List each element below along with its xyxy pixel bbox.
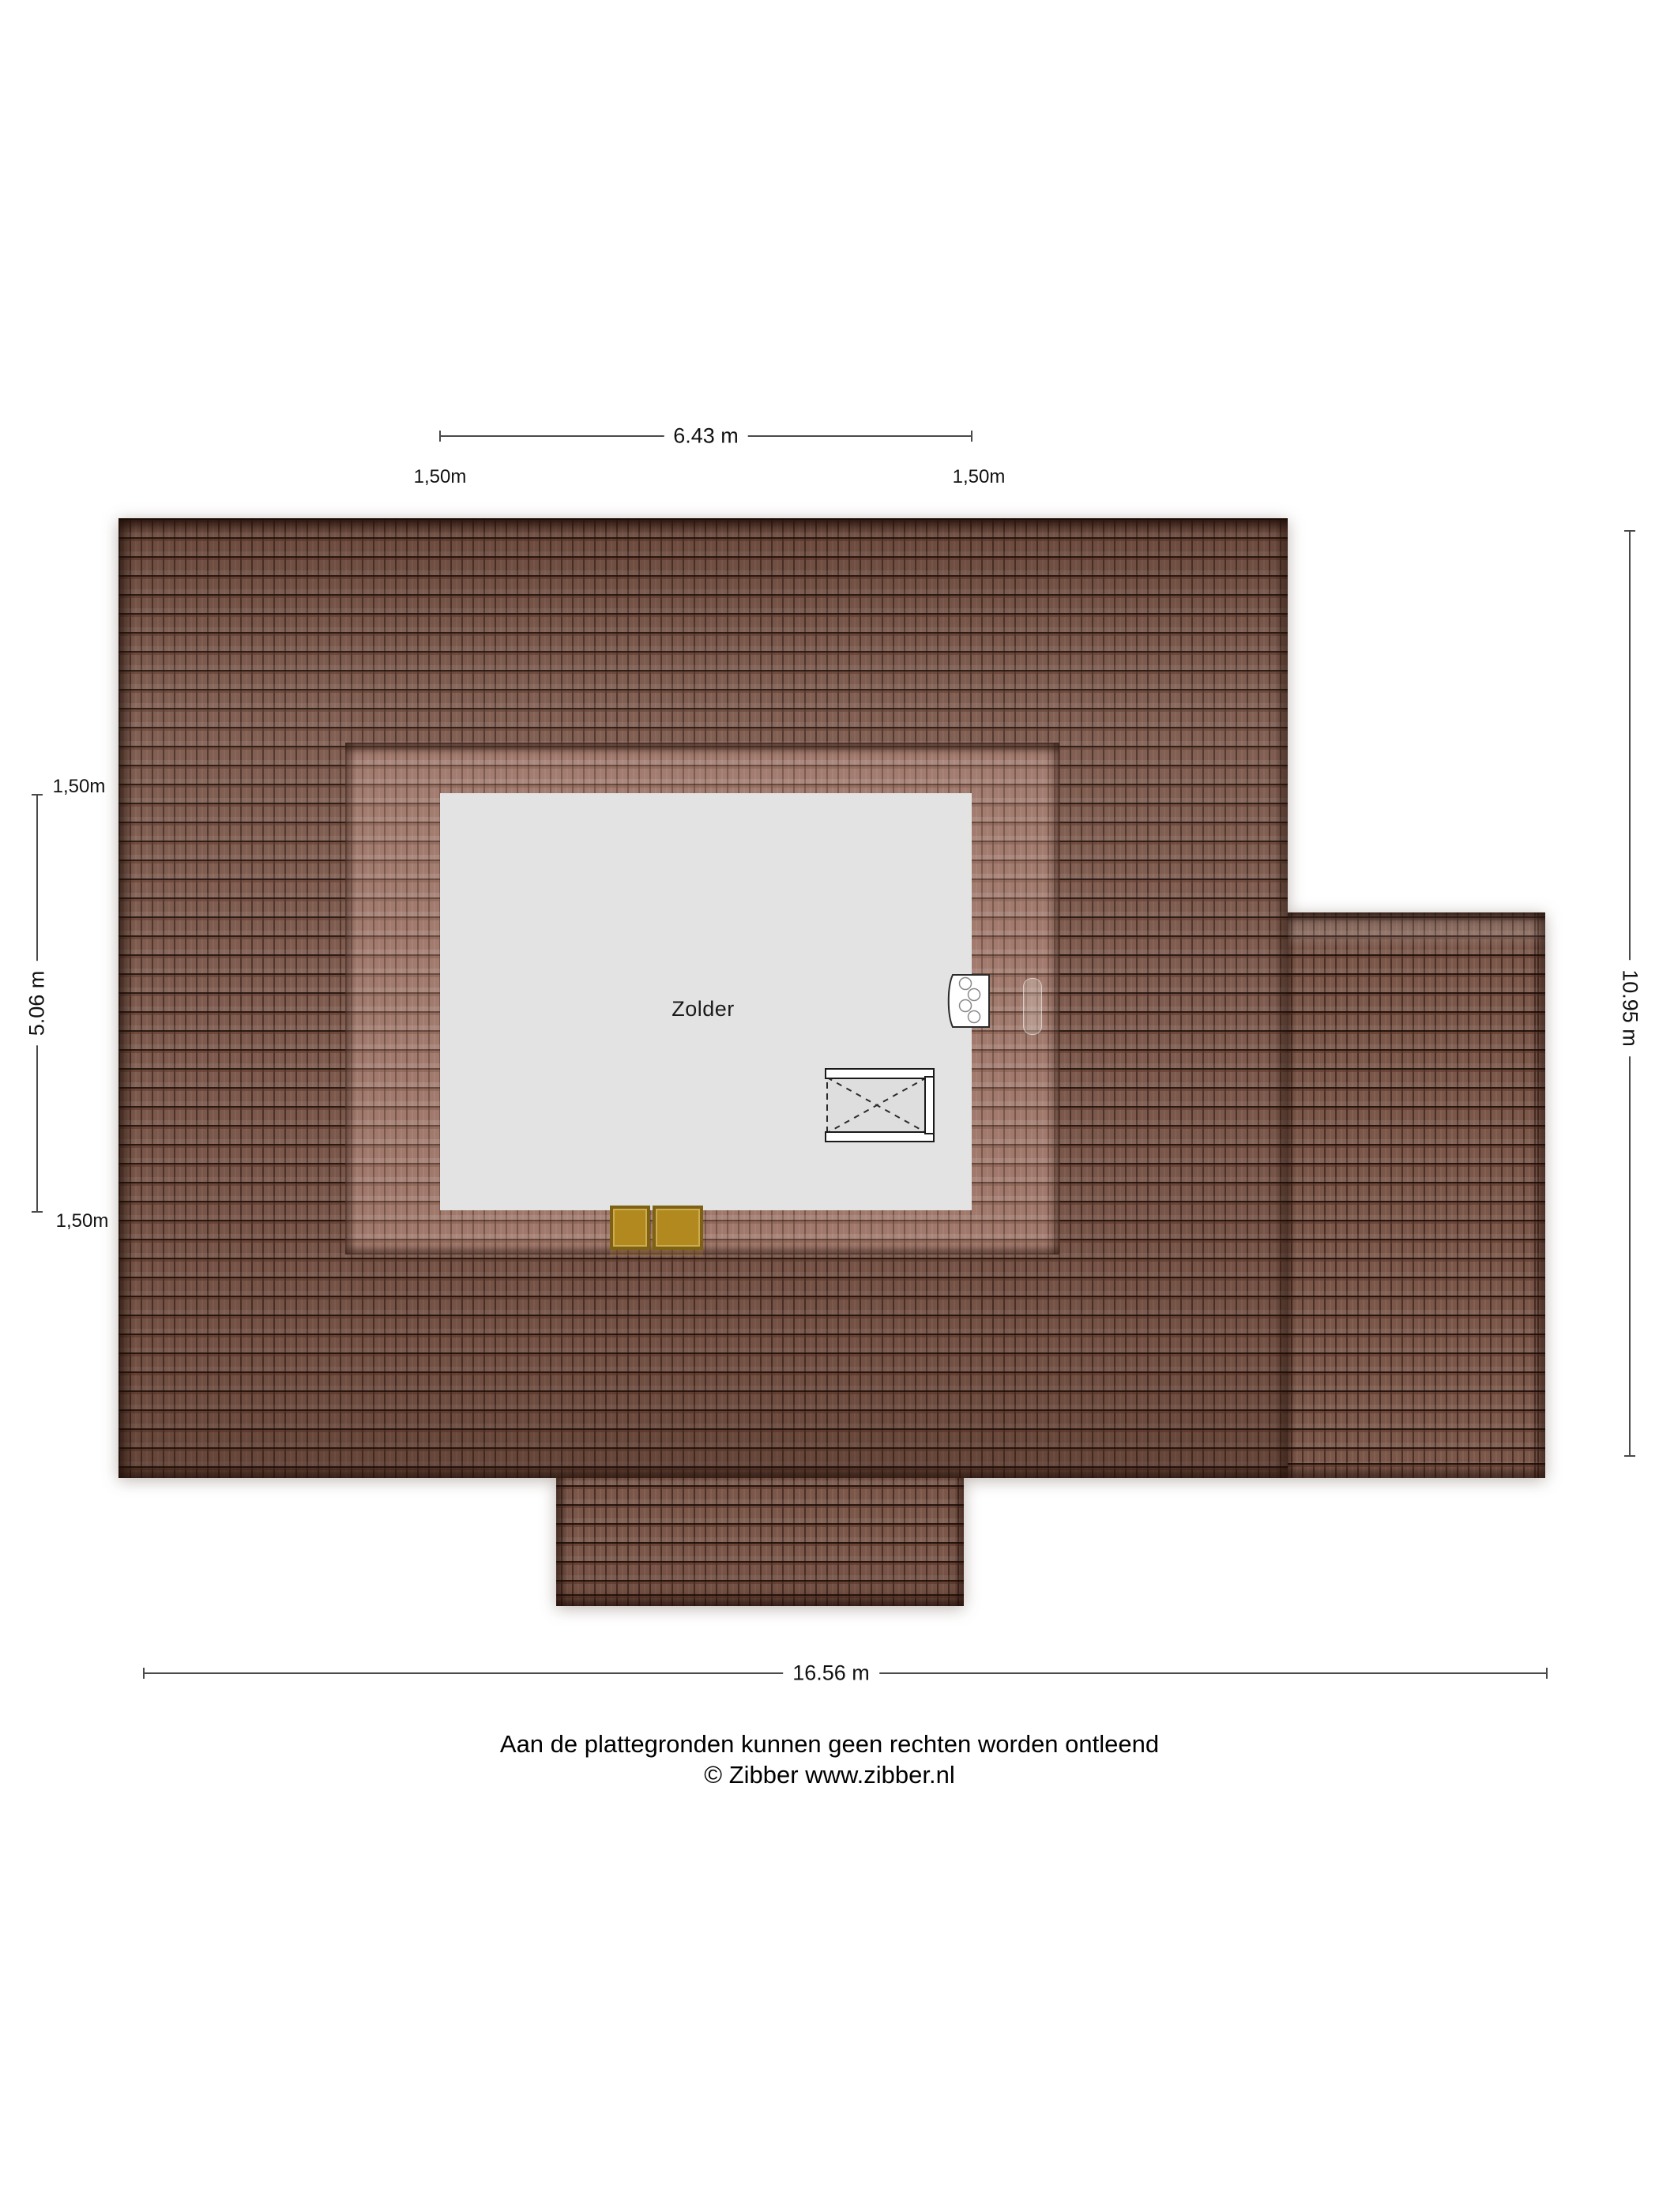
footer-copyright: © Zibber www.zibber.nl — [0, 1761, 1659, 1789]
roof-bottom-protrusion — [556, 1478, 964, 1606]
room-zolder: Zolder — [440, 793, 972, 1210]
boiler-unit — [942, 974, 991, 1028]
vent-pipe — [1023, 978, 1042, 1035]
roof-right-extension — [1288, 912, 1545, 1478]
skylight-window-left — [610, 1206, 650, 1250]
room-label: Zolder — [671, 997, 735, 1021]
footer-disclaimer: Aan de plattegronden kunnen geen rechten… — [0, 1730, 1659, 1759]
staircase-opening — [825, 1068, 935, 1142]
roof-plan: Zolder — [0, 0, 1659, 2212]
skylight-window-right — [653, 1206, 703, 1250]
floor-plan-canvas: 6.43 m 1,50m 1,50m 5.06 m 1,50m 1,50m 10… — [0, 0, 1659, 2212]
